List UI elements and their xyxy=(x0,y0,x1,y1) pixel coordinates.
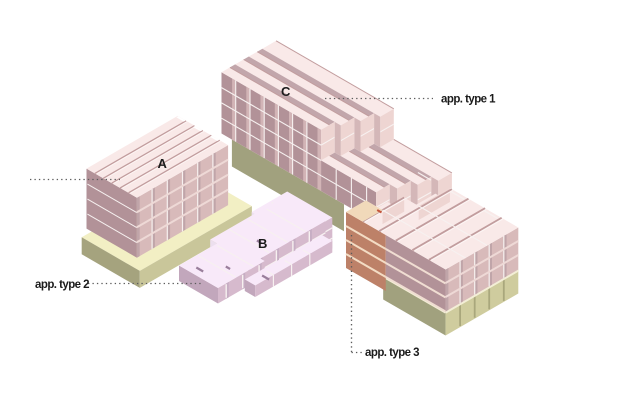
svg-text:B: B xyxy=(258,236,267,251)
svg-text:app. type 2: app. type 2 xyxy=(35,279,89,291)
svg-text:A: A xyxy=(158,156,168,171)
svg-text:app. type 1: app. type 1 xyxy=(441,94,496,106)
svg-text:app. type 3: app. type 3 xyxy=(365,347,419,359)
svg-text:C: C xyxy=(281,84,291,99)
